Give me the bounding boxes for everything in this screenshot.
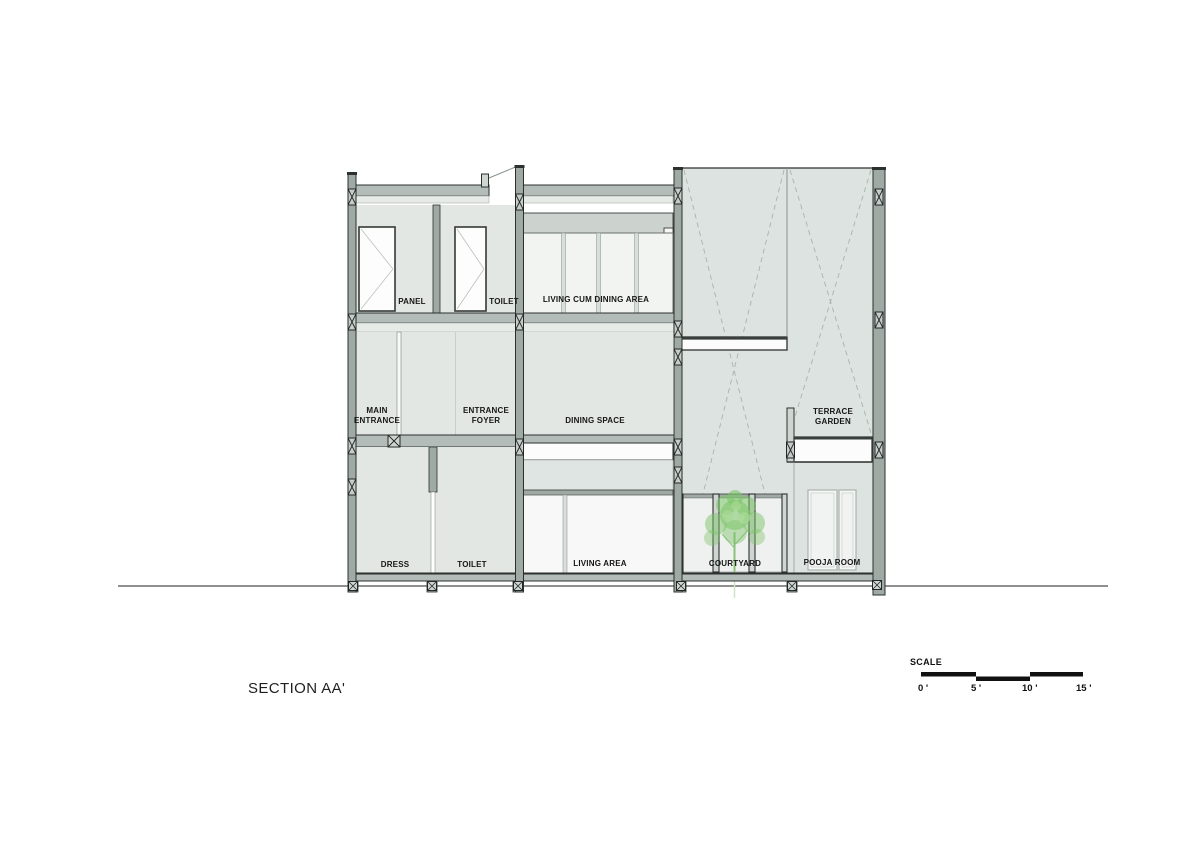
- scale-bar: [921, 672, 1083, 681]
- label-living-cum-dining: LIVING CUM DINING AREA: [543, 295, 649, 305]
- label-courtyard: COURTYARD: [709, 559, 761, 569]
- toilet-door: [455, 227, 486, 311]
- label-main-entrance: MAIN ENTRANCE: [354, 406, 400, 426]
- roof-parapet-left: [348, 185, 489, 203]
- label-pooja-room: POOJA ROOM: [804, 558, 861, 568]
- roof-parapet-right: [523, 185, 681, 203]
- label-dress: DRESS: [381, 560, 410, 570]
- scale-title: SCALE: [910, 657, 942, 667]
- label-dining-space: DINING SPACE: [565, 416, 625, 426]
- label-toilet-lower: TOILET: [457, 560, 487, 570]
- floor1-rooms: [356, 332, 673, 435]
- label-toilet-upper: TOILET: [489, 297, 519, 307]
- floor-slab: [348, 573, 885, 581]
- scale-tick-5: 5 ': [971, 683, 981, 694]
- label-terrace-garden: TERRACE GARDEN: [813, 407, 853, 427]
- label-entrance-foyer: ENTRANCE FOYER: [463, 406, 509, 426]
- label-panel: PANEL: [398, 297, 426, 307]
- panel-door: [359, 227, 395, 311]
- scale-tick-10: 10 ': [1022, 683, 1037, 694]
- skylight-step: [482, 167, 516, 187]
- scale-tick-15: 15 ': [1076, 683, 1091, 694]
- mid-slab-upper: [348, 313, 681, 332]
- label-living-area: LIVING AREA: [573, 559, 626, 569]
- scale-tick-0: 0 ': [918, 683, 928, 694]
- living-area: [523, 443, 673, 573]
- architectural-sheet: PANEL TOILET LIVING CUM DINING AREA MAIN…: [0, 0, 1200, 848]
- drawing-title: SECTION AA': [248, 680, 345, 697]
- ground-left-rooms: [356, 447, 516, 573]
- courtyard-beam: [675, 337, 787, 350]
